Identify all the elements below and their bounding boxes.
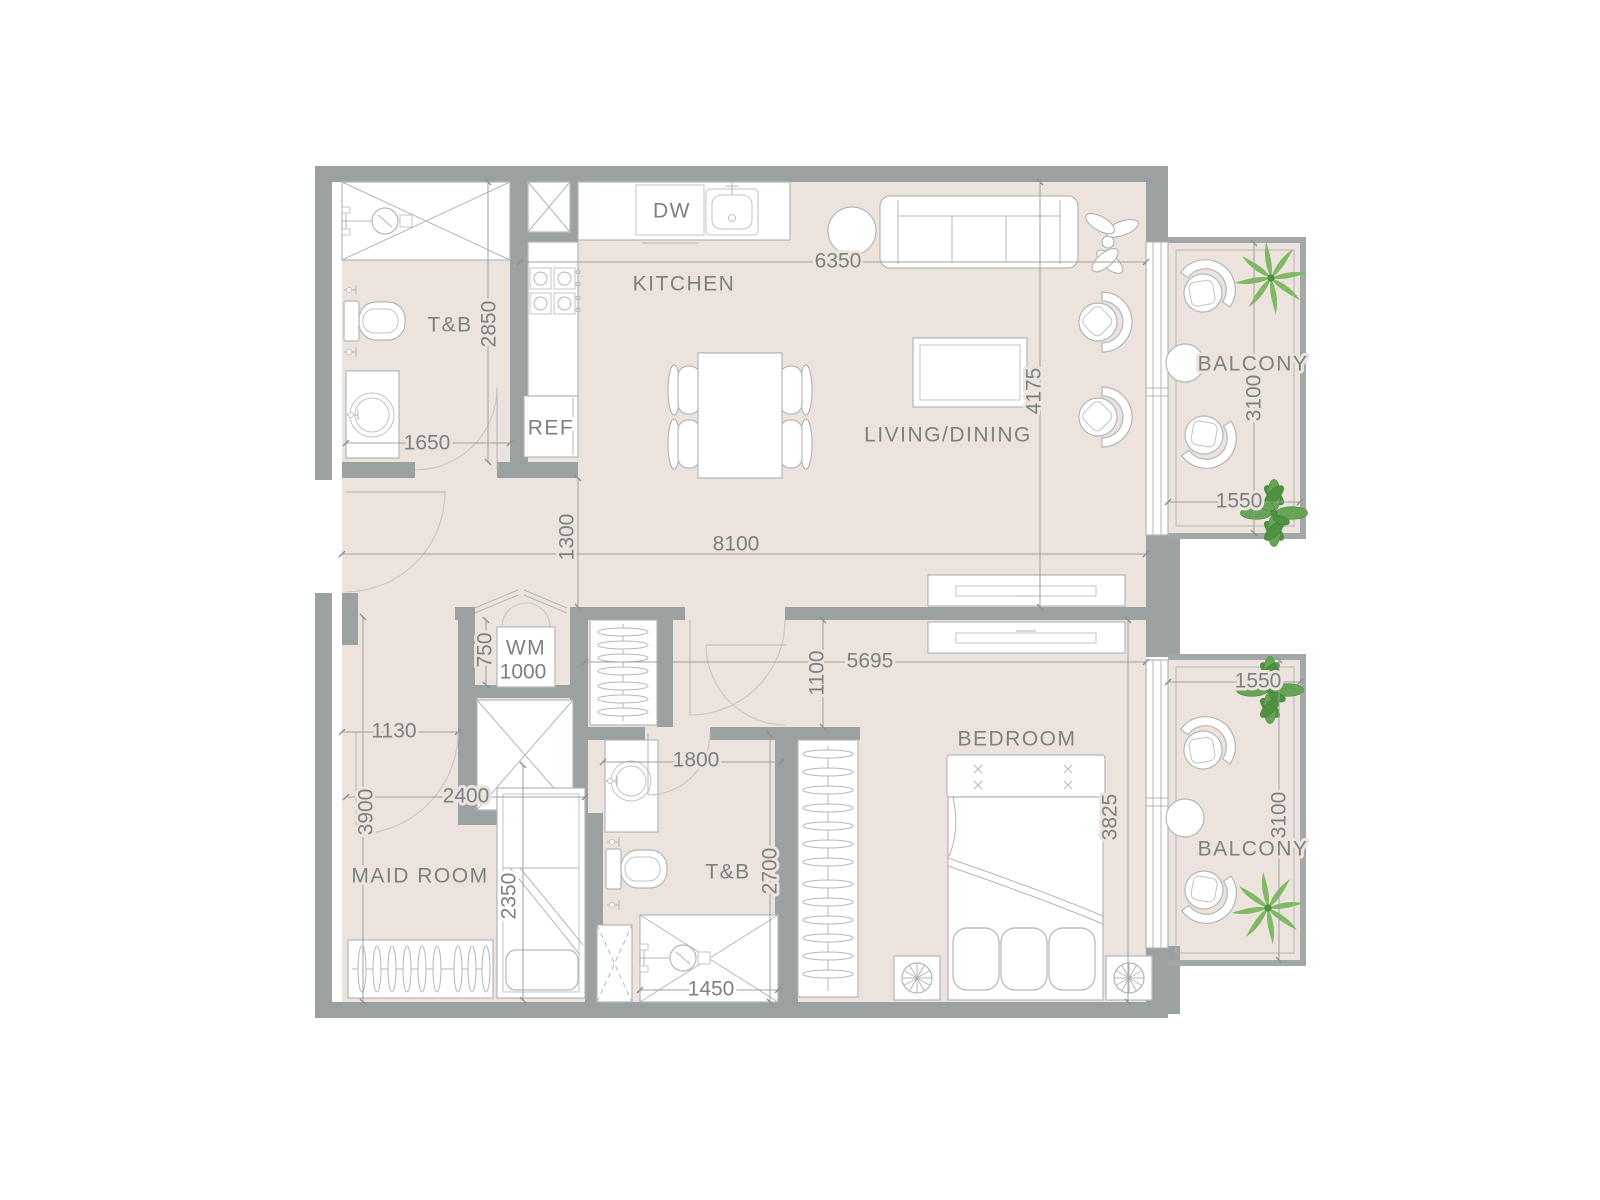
room-label-bedroom: BEDROOM xyxy=(957,728,1076,751)
bed-bench xyxy=(947,755,1105,797)
planter-icon xyxy=(894,956,940,1000)
wall-tb-top-bottom-r xyxy=(497,462,578,478)
wall-closet-right xyxy=(657,618,673,727)
balcony-bottom-wall-e xyxy=(1300,654,1306,966)
dim-1100: 1100 xyxy=(806,650,829,695)
wall-wardrobe-cap xyxy=(798,727,860,740)
window-living-balcony xyxy=(1146,242,1168,535)
dim-2350: 2350 xyxy=(498,873,521,920)
kitchen-column xyxy=(528,242,578,396)
wall-wm-jamb-left xyxy=(455,607,475,620)
wall-divider-right xyxy=(785,607,1146,620)
dim-wm-width: 1000 xyxy=(500,661,547,684)
wall-bottom xyxy=(315,1002,1168,1018)
room-label-balcony-top: BALCONY xyxy=(1198,353,1309,376)
dim-1800: 1800 xyxy=(673,749,720,772)
wall-shaft-bottom xyxy=(528,232,578,242)
room-label-living: LIVING/DINING xyxy=(864,424,1032,447)
maid-closet xyxy=(348,940,493,998)
dim-3900: 3900 xyxy=(355,789,378,836)
floor-plan: T&B KITCHEN LIVING/DINING BALCONY MAID R… xyxy=(0,0,1600,1200)
pillow xyxy=(506,950,578,990)
dim-3825: 3825 xyxy=(1099,794,1122,841)
dining-chair xyxy=(780,419,812,469)
balcony-table xyxy=(1166,799,1204,837)
balcony-bottom-wall-n xyxy=(1168,654,1306,660)
side-table xyxy=(828,207,876,255)
dim-2400: 2400 xyxy=(443,785,490,808)
wall-entry-stub xyxy=(342,593,358,645)
room-label-tb-top: T&B xyxy=(427,314,472,337)
room-label-tb-mid: T&B xyxy=(705,861,750,884)
wall-tbmid-top-r xyxy=(710,727,775,740)
wall-left-upper xyxy=(315,166,332,480)
tv-console-bedroom xyxy=(928,622,1125,653)
dim-6350: 6350 xyxy=(815,250,862,273)
balcony-bottom-wall-s xyxy=(1168,960,1306,966)
toilet-icon xyxy=(606,849,667,889)
balcony-top-wall-s xyxy=(1168,533,1306,539)
hall-closet xyxy=(590,620,657,725)
appliance-label-wm: WM xyxy=(506,637,546,660)
wall-right-top-stub xyxy=(1146,166,1168,242)
dim-1450: 1450 xyxy=(688,978,735,1001)
appliance-label-ref: REF xyxy=(528,417,575,440)
dim-1130: 1130 xyxy=(371,720,416,743)
dim-2850: 2850 xyxy=(478,301,501,348)
pillow xyxy=(1049,928,1095,990)
duct-shaft xyxy=(597,925,632,1002)
wall-left-lower xyxy=(315,593,332,1016)
planter-icon xyxy=(1106,956,1152,1000)
dim-5695: 5695 xyxy=(847,650,894,673)
dim-1300: 1300 xyxy=(556,514,579,561)
window-bedroom-balcony xyxy=(1146,660,1168,948)
dining-chair xyxy=(668,365,700,415)
toilet-icon xyxy=(344,301,405,341)
dim-1550-bottom: 1550 xyxy=(1235,670,1282,693)
dim-750: 750 xyxy=(474,632,497,667)
tv-console-living xyxy=(928,575,1125,606)
balcony-top-wall-n xyxy=(1168,237,1306,243)
room-label-balcony-bottom: BALCONY xyxy=(1198,838,1309,861)
dim-3100-top: 3100 xyxy=(1243,375,1266,422)
wall-top xyxy=(315,166,1168,182)
dining-chair xyxy=(668,419,700,469)
sofa xyxy=(880,196,1078,268)
dim-2700: 2700 xyxy=(759,848,782,895)
dim-1550-top: 1550 xyxy=(1216,490,1263,513)
appliance-label-dw: DW xyxy=(653,200,691,223)
room-label-maid: MAID ROOM xyxy=(351,865,488,888)
dim-3100-bottom: 3100 xyxy=(1268,792,1291,839)
bedroom-wardrobe xyxy=(798,740,858,997)
dining-chair xyxy=(780,365,812,415)
pillow xyxy=(953,928,999,990)
wall-tbmid-top-l xyxy=(588,727,645,740)
pillow xyxy=(1001,928,1047,990)
bed xyxy=(948,797,1103,1000)
dim-4175: 4175 xyxy=(1023,368,1046,415)
dim-8100: 8100 xyxy=(713,533,760,556)
dining-table xyxy=(698,353,782,478)
balcony-top-wall-e xyxy=(1300,237,1306,539)
dim-1650: 1650 xyxy=(404,432,451,455)
room-label-kitchen: KITCHEN xyxy=(633,273,736,296)
wall-tb-top-bottom-l xyxy=(342,462,415,478)
wall-between-balconies xyxy=(1146,535,1180,657)
